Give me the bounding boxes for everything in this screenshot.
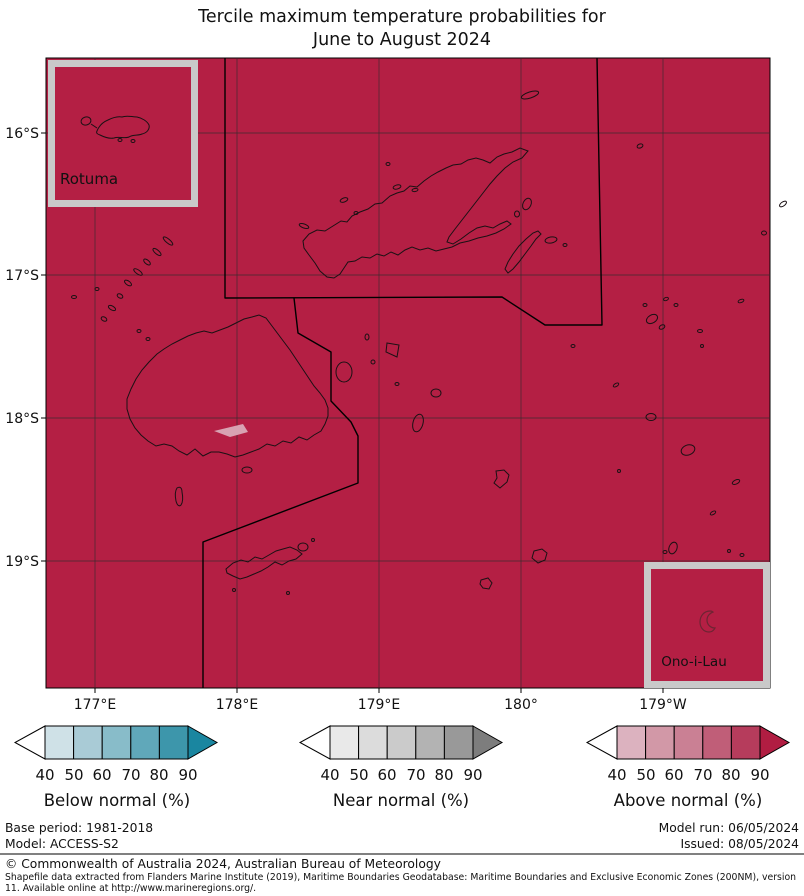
legend-above-normal: 40 50 60 70 80 90 Above normal (%) [587, 726, 789, 810]
inset-rotuma: Rotuma [48, 60, 198, 207]
legend-below-normal: 40 50 60 70 80 90 Below normal (%) [15, 726, 217, 810]
legend-above-left-arrow [587, 726, 617, 759]
legend-near-normal: 40 50 60 70 80 90 Near normal (%) [300, 726, 502, 810]
lat-label: 16°S [5, 126, 39, 142]
legend-above-label: Above normal (%) [614, 791, 763, 810]
legend-tick: 50 [636, 766, 655, 784]
footer: Base period: 1981-2018 Model: ACCESS-S2 … [0, 821, 804, 894]
legend-tick: 60 [377, 766, 396, 784]
legend-near-seg-40-50 [330, 726, 359, 759]
legend-below-right-arrow [188, 726, 217, 759]
legend-tick: 40 [607, 766, 626, 784]
probability-map-figure: Tercile maximum temperature probabilitie… [0, 0, 804, 896]
legend-above-seg-40-50 [617, 726, 646, 759]
model-text: Model: ACCESS-S2 [5, 837, 119, 851]
legend-near-left-arrow [300, 726, 330, 759]
legend-below-seg-60-70 [102, 726, 131, 759]
issued-text: Issued: 08/05/2024 [680, 837, 799, 851]
inset-rotuma-label: Rotuma [60, 170, 118, 188]
legend-tick: 70 [406, 766, 425, 784]
legend-tick: 80 [434, 766, 453, 784]
legend-tick: 40 [35, 766, 54, 784]
legend-above-seg-80-90 [731, 726, 760, 759]
legend-tick: 80 [149, 766, 168, 784]
legend-near-label: Near normal (%) [333, 791, 469, 810]
legend-tick: 70 [693, 766, 712, 784]
legend-near-seg-70-80 [416, 726, 445, 759]
base-period-text: Base period: 1981-2018 [5, 821, 153, 835]
figure: Tercile maximum temperature probabilitie… [0, 0, 804, 896]
legend-near-seg-50-60 [359, 726, 388, 759]
shapefile-attribution-line1: Shapefile data extracted from Flanders M… [5, 872, 796, 883]
legend: 40 50 60 70 80 90 Below normal (%) 40 50… [15, 726, 789, 810]
lon-label: 177°E [74, 697, 117, 713]
legend-above-right-arrow [760, 726, 789, 759]
lon-label: 179°E [358, 697, 401, 713]
legend-near-seg-80-90 [444, 726, 473, 759]
legend-tick: 50 [349, 766, 368, 784]
lon-label: 178°E [216, 697, 259, 713]
map-panel: Rotuma Ono-i-Lau 16°S 17°S 18°S 19°S [5, 58, 787, 713]
legend-tick: 60 [92, 766, 111, 784]
lat-label: 19°S [5, 554, 39, 570]
lon-label: 179°W [639, 697, 687, 713]
legend-tick: 60 [664, 766, 683, 784]
legend-below-left-arrow [15, 726, 45, 759]
legend-above-seg-70-80 [703, 726, 732, 759]
legend-tick: 50 [64, 766, 83, 784]
legend-near-right-arrow [473, 726, 502, 759]
legend-below-seg-80-90 [159, 726, 188, 759]
model-run-text: Model run: 06/05/2024 [659, 821, 800, 835]
title: Tercile maximum temperature probabilitie… [197, 7, 606, 50]
shapefile-attribution-line2: 11. Available online at http://www.marin… [5, 883, 256, 894]
legend-above-seg-60-70 [674, 726, 703, 759]
lat-label: 17°S [5, 268, 39, 284]
legend-below-seg-70-80 [131, 726, 160, 759]
legend-tick: 80 [721, 766, 740, 784]
inset-ono-i-lau: Ono-i-Lau [644, 562, 770, 688]
legend-near-seg-60-70 [387, 726, 416, 759]
legend-tick: 40 [320, 766, 339, 784]
legend-above-seg-50-60 [646, 726, 675, 759]
title-line-1: Tercile maximum temperature probabilitie… [197, 7, 606, 27]
lat-label: 18°S [5, 411, 39, 427]
title-line-2: June to August 2024 [312, 30, 491, 50]
legend-tick: 90 [750, 766, 769, 784]
legend-tick: 90 [463, 766, 482, 784]
legend-tick: 70 [121, 766, 140, 784]
legend-tick: 90 [178, 766, 197, 784]
legend-below-seg-40-50 [45, 726, 74, 759]
legend-below-seg-50-60 [74, 726, 103, 759]
lon-label: 180° [504, 697, 538, 713]
legend-below-label: Below normal (%) [44, 791, 191, 810]
inset-ono-label: Ono-i-Lau [661, 654, 727, 670]
copyright-text: © Commonwealth of Australia 2024, Austra… [5, 857, 441, 871]
